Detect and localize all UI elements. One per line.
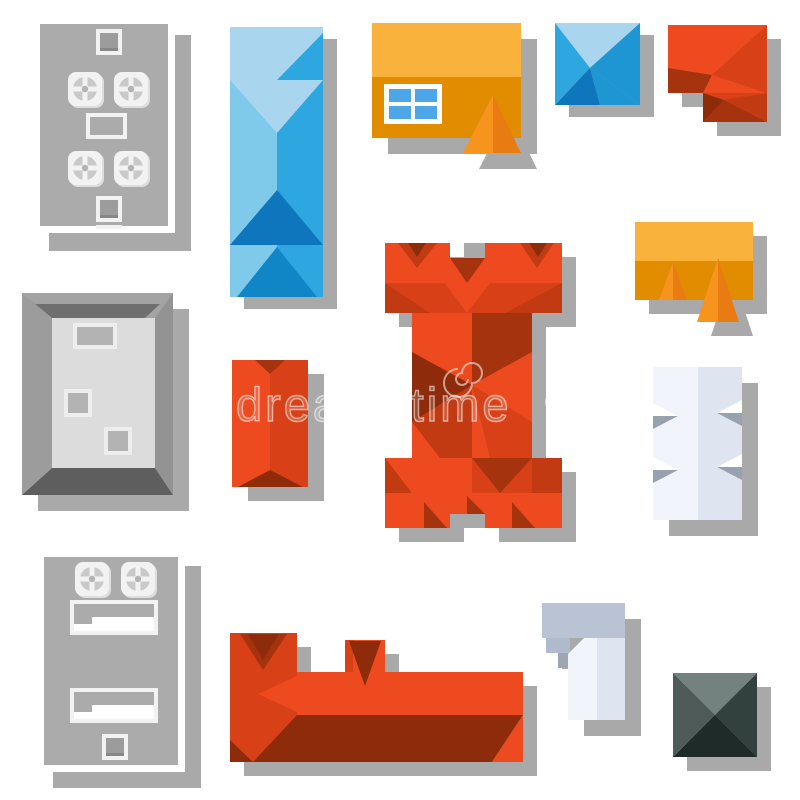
yellow-house-skylight-dormer-icon [372,23,537,169]
fan-vent-icon [114,151,150,187]
rooftops-illustration [0,0,800,800]
skylight [64,389,92,417]
fan-vent-icon [114,72,150,108]
square-vent-icon [102,734,128,760]
parapet-roof-building-icon [22,293,189,511]
red-gable-roof-small-icon [232,360,324,501]
skylight-hatch [70,688,158,723]
dark-pyramid-roof-icon [673,673,771,771]
fan-vent-icon [68,151,104,187]
orange-long-roof-towers-icon [230,633,537,776]
orange-l-shaped-roof-icon [668,25,781,136]
illustration-canvas: dreamstime [0,0,800,800]
skylight [104,427,132,455]
fan-vent-icon [68,72,104,108]
blue-hip-roof-icon [555,23,654,117]
square-vent-icon [96,196,122,222]
skylight [86,113,127,139]
skylight [73,323,117,349]
roof-window [384,84,442,124]
orange-castle-roof-icon [385,243,576,542]
square-vent-icon [96,29,122,55]
fan-vent-icon [121,562,157,598]
blue-gable-roof-icon [230,27,337,309]
flat-roof-building-vents-small-icon [37,550,201,788]
skylight-hatch [70,600,158,635]
white-t-shaped-building-icon [542,603,641,736]
yellow-house-two-dormers-icon [635,222,767,336]
white-notched-roof-icon [653,367,758,536]
fan-vent-icon [75,562,111,598]
flat-roof-building-vents-large-icon [33,17,191,251]
